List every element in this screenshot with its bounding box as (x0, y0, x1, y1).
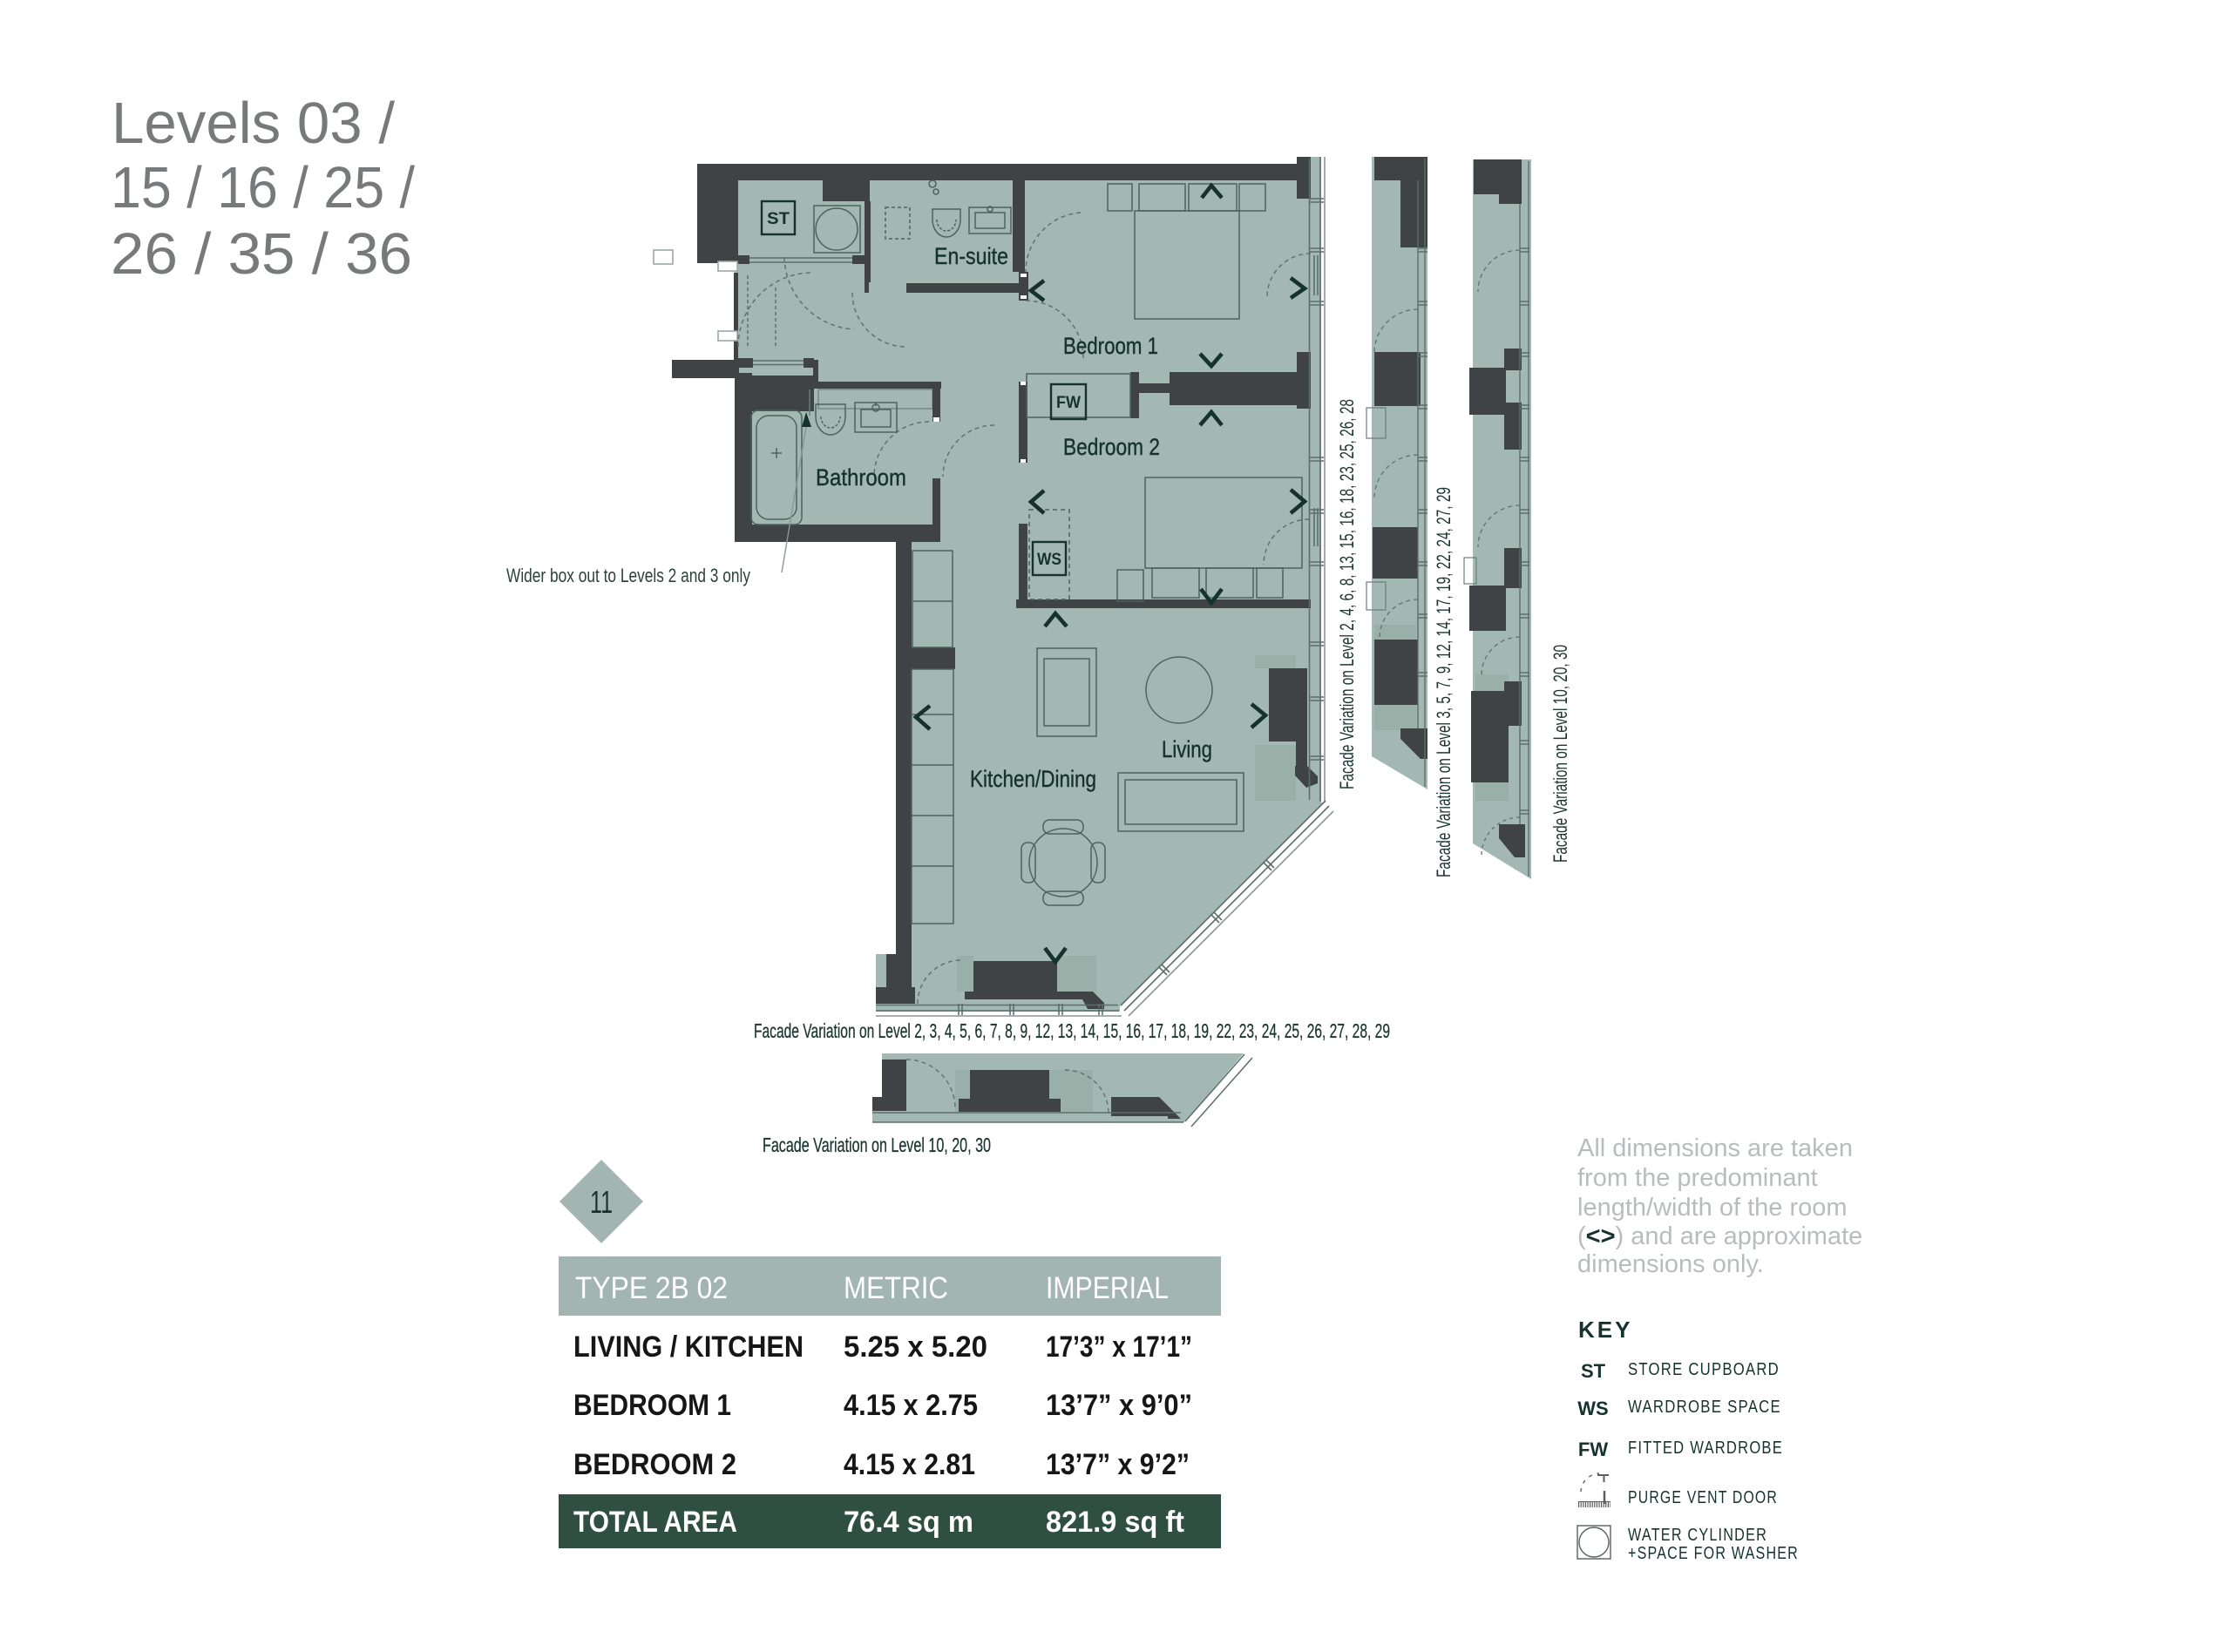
svg-text:Living: Living (1162, 736, 1212, 762)
svg-text:5.25 x 5.20: 5.25 x 5.20 (844, 1330, 987, 1364)
svg-text:4.15 x 2.75: 4.15 x 2.75 (844, 1389, 978, 1422)
svg-text:IMPERIAL: IMPERIAL (1046, 1271, 1169, 1305)
svg-text:Facade Variation on Level 10,: Facade Variation on Level 10, 20, 30 (763, 1134, 991, 1156)
svg-text:FITTED WARDROBE: FITTED WARDROBE (1628, 1439, 1783, 1458)
svg-text:KEY: KEY (1578, 1317, 1632, 1343)
svg-text:ST: ST (1581, 1360, 1606, 1382)
svg-text:TOTAL AREA: TOTAL AREA (573, 1506, 737, 1539)
svg-text:WARDROBE SPACE: WARDROBE SPACE (1628, 1398, 1781, 1417)
svg-text:Facade Variation on Level 2, 4: Facade Variation on Level 2, 4, 6, 8, 13… (1336, 399, 1358, 789)
svg-text:Facade Variation on Level 10,: Facade Variation on Level 10, 20, 30 (1549, 645, 1571, 863)
svg-text:Bedroom 2: Bedroom 2 (1063, 434, 1160, 460)
svg-text:17’3” x 17’1”: 17’3” x 17’1” (1046, 1330, 1192, 1364)
svg-text:Wider box out to Levels 2 and: Wider box out to Levels 2 and 3 only (506, 565, 750, 586)
svg-text:Facade Variation on Level 2, 3: Facade Variation on Level 2, 3, 4, 5, 6,… (754, 1019, 1390, 1042)
svg-text:En-suite: En-suite (934, 243, 1008, 269)
svg-text:ST: ST (767, 210, 790, 228)
svg-text:Kitchen/Dining: Kitchen/Dining (970, 766, 1096, 792)
svg-text:WATER CYLINDER: WATER CYLINDER (1628, 1526, 1767, 1545)
svg-text:All dimensions are taken: All dimensions are taken (1577, 1134, 1853, 1162)
svg-text:+SPACE FOR WASHER: +SPACE FOR WASHER (1628, 1544, 1799, 1563)
svg-text:Facade Variation on Level 3, 5: Facade Variation on Level 3, 5, 7, 9, 12… (1433, 487, 1455, 877)
svg-text:821.9 sq ft: 821.9 sq ft (1046, 1506, 1184, 1539)
svg-text:STORE CUPBOARD: STORE CUPBOARD (1628, 1360, 1780, 1379)
svg-text:LIVING / KITCHEN: LIVING / KITCHEN (573, 1330, 804, 1364)
svg-text:Levels 03 /: Levels 03 / (112, 91, 395, 156)
svg-text:from the predominant: from the predominant (1577, 1164, 1818, 1192)
svg-text:15 / 16 / 25 /: 15 / 16 / 25 / (111, 155, 415, 220)
svg-text:WS: WS (1577, 1398, 1608, 1419)
svg-text:26 / 35 / 36: 26 / 35 / 36 (111, 221, 412, 287)
svg-text:TYPE 2B 02: TYPE 2B 02 (575, 1271, 728, 1305)
svg-text:11: 11 (590, 1184, 613, 1220)
svg-text:dimensions only.: dimensions only. (1577, 1250, 1764, 1278)
svg-text:length/width of the room: length/width of the room (1577, 1194, 1848, 1222)
svg-text:WS: WS (1037, 551, 1061, 569)
svg-text:FW: FW (1056, 394, 1081, 412)
svg-text:BEDROOM 2: BEDROOM 2 (573, 1448, 736, 1481)
svg-text:13’7” x 9’0”: 13’7” x 9’0” (1046, 1389, 1192, 1422)
svg-text:BEDROOM 1: BEDROOM 1 (573, 1389, 731, 1422)
svg-text:FW: FW (1578, 1439, 1608, 1460)
svg-text:76.4 sq m: 76.4 sq m (844, 1506, 973, 1539)
svg-text:13’7” x 9’2”: 13’7” x 9’2” (1046, 1448, 1190, 1481)
svg-text:METRIC: METRIC (844, 1271, 948, 1305)
svg-text:(<>) and are approximate: (<>) and are approximate (1577, 1222, 1862, 1250)
svg-text:4.15 x 2.81: 4.15 x 2.81 (844, 1448, 975, 1481)
svg-text:Bathroom: Bathroom (816, 464, 906, 491)
svg-text:PURGE VENT DOOR: PURGE VENT DOOR (1628, 1488, 1778, 1507)
svg-text:Bedroom 1: Bedroom 1 (1063, 333, 1158, 359)
